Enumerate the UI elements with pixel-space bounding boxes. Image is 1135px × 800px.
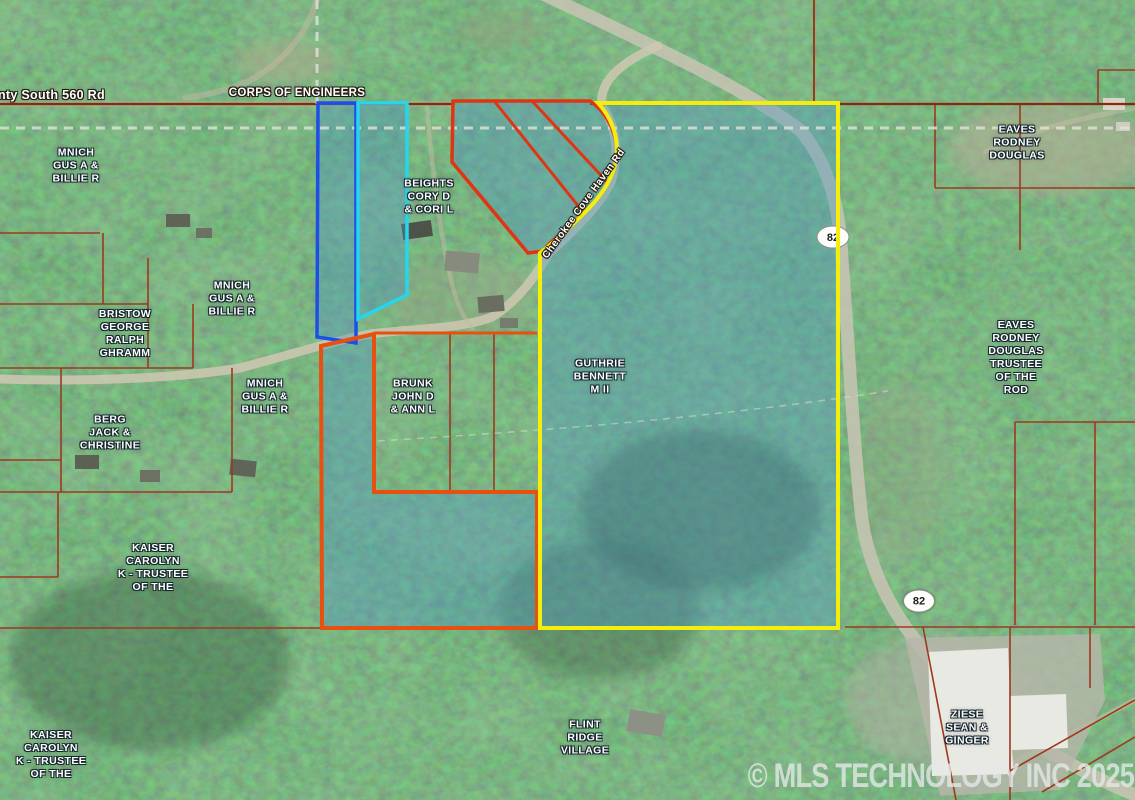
aerial-imagery: 82: [0, 0, 1135, 800]
corps-of-engineers-label: CORPS OF ENGINEERS: [229, 87, 365, 99]
map-viewport[interactable]: 82 MNICH GUS A & BILLIE R BEIGHTS CORY D…: [0, 0, 1135, 800]
copyright-watermark: © MLS TECHNOLOGY INC 2025: [748, 757, 1134, 796]
county-560-road-label: nty South 560 Rd: [0, 88, 105, 102]
highway-82-shield-upper: 82: [817, 226, 849, 248]
highway-82-shield-lower: 82: [903, 590, 935, 613]
